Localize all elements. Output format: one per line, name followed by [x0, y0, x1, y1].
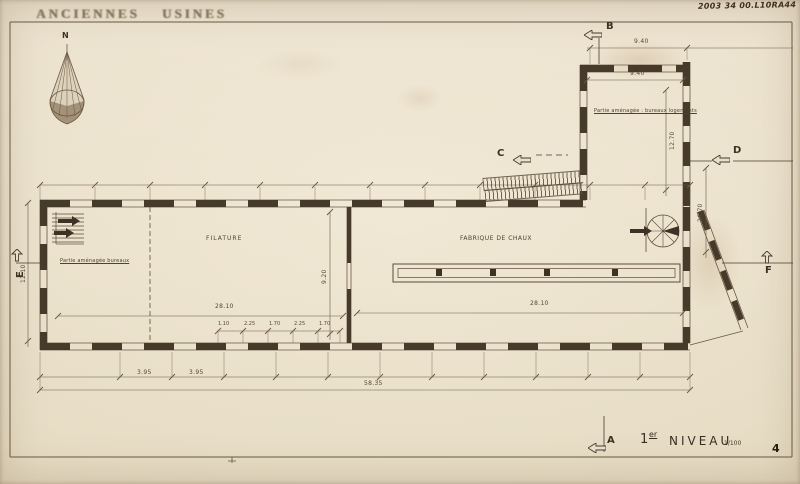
- title-level-word: NIVEAU: [669, 434, 732, 448]
- north-label: N: [62, 31, 69, 40]
- section-arrow-left-icon: [584, 30, 602, 40]
- dim-wing-width-inner: 9.40: [630, 70, 645, 77]
- section-letter-a: A: [607, 435, 615, 446]
- section-marker-d: [712, 150, 730, 169]
- plan-sheet: ANCIENNES USINES 2003 34 00.L10RA44 N B …: [0, 0, 800, 484]
- dim-bay-2: 2.25: [244, 321, 255, 327]
- section-letter-b: B: [606, 21, 614, 32]
- dim-total-length: 58.35: [364, 380, 383, 387]
- room-note-bureaux-logements: Partie aménagée : bureaux logements: [594, 108, 697, 114]
- page-number: 4: [772, 442, 780, 455]
- section-letter-d: D: [733, 145, 741, 156]
- dim-left-height: 12.10: [20, 264, 27, 283]
- section-letter-f: F: [765, 265, 772, 276]
- section-arrow-left-icon: [712, 155, 730, 165]
- room-label-fabrique-de-chaux: FABRIQUE DE CHAUX: [460, 235, 532, 242]
- stamp-title: ANCIENNES USINES: [36, 6, 227, 22]
- section-arrow-up-icon: [761, 251, 773, 264]
- section-letter-c: C: [497, 148, 504, 159]
- dim-bay-3: 1.70: [269, 321, 280, 327]
- section-marker-a: [588, 438, 606, 457]
- spiral-stair: [630, 208, 679, 252]
- wall-masonry: [40, 62, 745, 350]
- plan-linework: [0, 0, 800, 484]
- section-marker-c: [513, 150, 531, 169]
- section-marker-e: [11, 247, 23, 266]
- dim-wing-height: 12.70: [669, 131, 676, 150]
- dim-bottom-bay-2: 3.95: [189, 369, 204, 376]
- title-level-suffix: er: [649, 430, 657, 439]
- dim-bay-1: 1.10: [218, 321, 229, 327]
- dim-bottom-bay-1: 3.95: [137, 369, 152, 376]
- title-level-number: 1: [640, 432, 649, 447]
- section-marker-b: [584, 25, 602, 44]
- section-arrow-left-icon: [588, 443, 606, 453]
- title-scale: 1/100: [724, 440, 741, 447]
- dimension-lines: [25, 45, 793, 393]
- dim-hall-width: 9.20: [321, 269, 328, 284]
- dim-right-hall-length: 28.10: [530, 300, 549, 307]
- section-arrow-left-icon: [513, 155, 531, 165]
- interior-stair: [52, 214, 84, 242]
- dim-bay-5: 1.70: [319, 321, 330, 327]
- north-compass-icon: [50, 44, 84, 124]
- room-note-bureaux: Partie aménagée bureaux: [60, 258, 129, 264]
- dim-wing-width: 9.40: [634, 38, 649, 45]
- dim-right-height: 26.70: [697, 203, 704, 222]
- sheet-frame: [10, 22, 792, 463]
- dim-bay-4: 2.25: [294, 321, 305, 327]
- archive-reference-number: 2003 34 00.L10RA44: [698, 0, 796, 11]
- channel-feature: [393, 264, 680, 282]
- dim-left-hall-length: 28.10: [215, 303, 234, 310]
- section-arrow-up-icon: [11, 249, 23, 262]
- room-label-filature: FILATURE: [206, 235, 242, 242]
